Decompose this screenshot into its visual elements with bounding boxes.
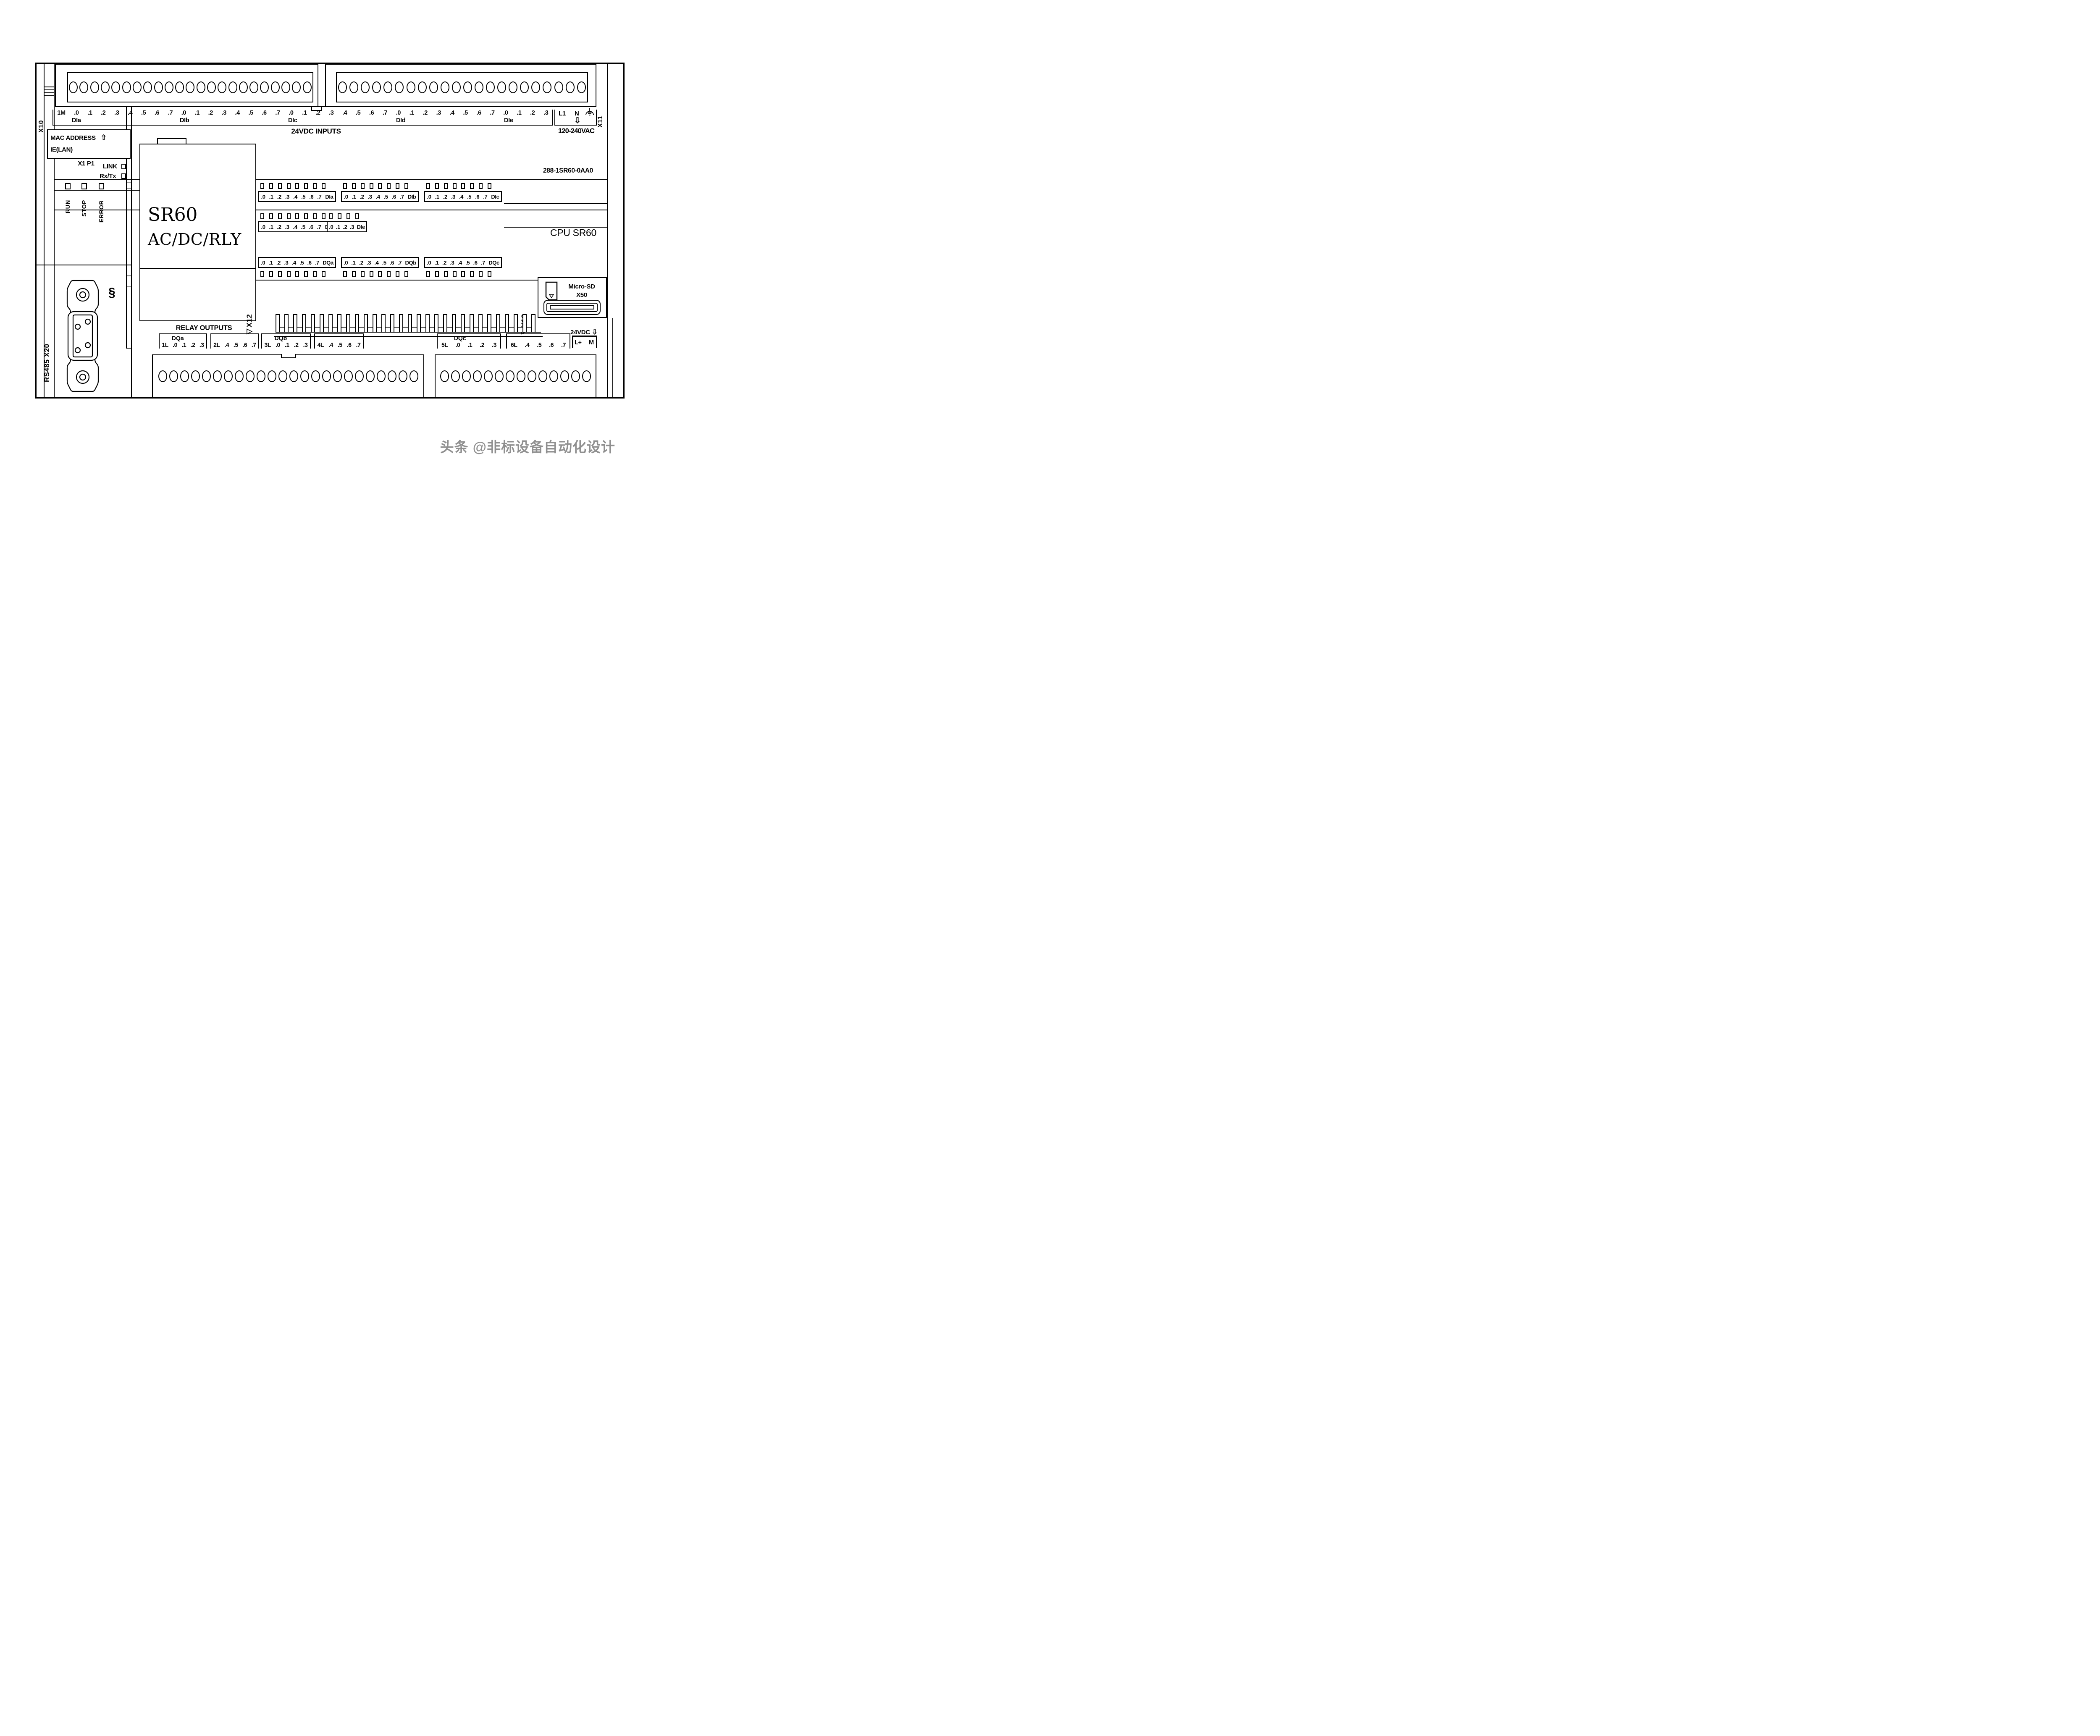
comb-tooth <box>443 314 447 332</box>
terminal-row <box>337 73 587 102</box>
screw-terminal <box>239 81 248 93</box>
led-label: .4 <box>293 224 297 230</box>
screw-terminal <box>186 81 194 93</box>
screw-terminal <box>69 81 78 93</box>
DIb-led-.2 <box>361 183 365 189</box>
screw-terminal <box>228 81 237 93</box>
din-clip-hatch <box>45 95 54 96</box>
plc-faceplate-diagram: X10 X11 1M.0.1.2.3.4.5.6.7.0.1.2.3.4.5.6… <box>0 0 659 465</box>
led-label: DIb <box>408 194 416 200</box>
led-label: DQa <box>323 260 333 266</box>
terminal-label: .6 <box>262 110 266 116</box>
DQa-led-.1 <box>269 271 273 277</box>
comb-tooth <box>355 314 359 332</box>
DIc-led-.2 <box>444 183 448 189</box>
DId-led-.4 <box>295 213 299 219</box>
screw-terminal <box>349 81 358 93</box>
relay-group-4L: 4L.4.5.6.7 <box>314 333 364 349</box>
screw-terminal <box>571 370 580 382</box>
terminal-label: .2 <box>208 110 213 116</box>
DId-led-.2 <box>278 213 282 219</box>
screw-terminal <box>560 370 569 382</box>
outputs-caption: RELAY OUTPUTS <box>163 324 245 332</box>
DIb-led-.7 <box>404 183 408 189</box>
comb-gap <box>315 327 320 332</box>
relay-terminal-label: .1 <box>181 341 186 348</box>
DIc-led-.6 <box>479 183 483 189</box>
terminal-label: .4 <box>235 110 240 116</box>
relay-group-labels: 3L.0.1.2.3 <box>262 341 310 348</box>
screw-terminal <box>246 370 255 382</box>
terminal-label: .6 <box>476 110 481 116</box>
comb-gap <box>465 327 470 332</box>
screw-terminal <box>218 81 226 93</box>
din-clip-hatch <box>45 87 54 87</box>
DIa-led-.7 <box>322 183 325 189</box>
relay-terminal-label: .7 <box>561 341 566 348</box>
input-group-DIa: DIa <box>72 117 81 124</box>
screw-terminal <box>517 370 525 382</box>
watermark: 头条 @非标设备自动化设计 <box>428 436 615 456</box>
sensor-lplus-label: L+ <box>575 339 582 346</box>
mac-address-text: MAC ADDRESS <box>50 134 96 142</box>
comb-tooth <box>425 314 430 332</box>
relay-terminal-label: 2L <box>213 341 220 348</box>
DIb-led-.4 <box>378 183 382 189</box>
relay-terminal-label: .5 <box>234 341 238 348</box>
screw-terminal <box>528 370 536 382</box>
comb-tooth <box>328 314 333 332</box>
comb-gap <box>518 327 522 332</box>
comb-tooth <box>408 314 412 332</box>
screw-terminal <box>303 81 312 93</box>
DIa-led-.1 <box>269 183 273 189</box>
DQb-label-box: .0.1.2.3.4.5.6.7DQb <box>341 257 419 268</box>
input-terminal-labels: 1M.0.1.2.3.4.5.6.7.0.1.2.3.4.5.6.7.0.1.2… <box>53 109 553 117</box>
screw-terminal <box>213 370 222 382</box>
screw-terminal <box>90 81 99 93</box>
power-down-arrow: ⇩ <box>574 116 581 126</box>
left-cap-line <box>55 190 139 191</box>
screw-terminal <box>441 81 449 93</box>
screw-terminal <box>429 81 438 93</box>
rxtx-led-label: Rx/Tx <box>100 173 116 180</box>
led-label: .1 <box>269 224 273 230</box>
screw-terminal <box>538 370 547 382</box>
comb-tooth <box>496 314 500 332</box>
led-label: .7 <box>481 260 485 266</box>
terminal-label: .3 <box>114 110 119 116</box>
screw-terminal <box>122 81 131 93</box>
screw-terminal <box>377 370 386 382</box>
terminal-row <box>68 73 312 102</box>
DIc-led-.5 <box>470 183 474 189</box>
screw-terminal <box>440 370 449 382</box>
sensor-bracket-top <box>572 336 597 337</box>
led-label: DQc <box>488 260 499 266</box>
DQa-led-.3 <box>287 271 291 277</box>
comb-tooth <box>514 314 518 332</box>
led-label: .5 <box>382 260 386 266</box>
comb-tooth <box>417 314 421 332</box>
screw-terminal <box>322 370 331 382</box>
DQc-led-.3 <box>453 271 457 277</box>
screw-terminal <box>180 370 189 382</box>
DId-led-row <box>260 213 325 219</box>
led-label: .0 <box>344 194 348 200</box>
led-label: .2 <box>276 260 281 266</box>
terminal-label: .2 <box>101 110 105 116</box>
sd-label-line2: X50 <box>559 291 605 299</box>
screw-terminal <box>388 370 396 382</box>
led-label: .3 <box>285 194 289 200</box>
comb-tooth <box>505 314 509 332</box>
DIb-led-.1 <box>352 183 356 189</box>
led-label: .5 <box>299 260 304 266</box>
screw-terminal <box>577 81 586 93</box>
DIe-label-box: .0.1.2.3DIe <box>327 221 367 232</box>
error-led <box>99 183 104 189</box>
terminal-label: .6 <box>155 110 159 116</box>
cpu-block-inner-line <box>140 268 255 269</box>
relay-terminal-label: .6 <box>549 341 554 348</box>
DQc-led-.6 <box>479 271 483 277</box>
DQc-led-.1 <box>435 271 439 277</box>
led-label: .2 <box>442 260 446 266</box>
screw-terminal <box>207 81 216 93</box>
terminal-label: .3 <box>222 110 226 116</box>
comb-tooth <box>522 314 527 332</box>
comb-gap <box>289 327 293 332</box>
DQb-led-.6 <box>396 271 399 277</box>
screw-terminal <box>418 81 427 93</box>
comb-tooth <box>399 314 403 332</box>
screw-terminal <box>260 81 269 93</box>
comb-gap <box>474 327 478 332</box>
screw-terminal <box>554 81 563 93</box>
strip-tick <box>127 275 131 276</box>
screw-terminal <box>111 81 120 93</box>
down-arrow-icon: ⇩ <box>592 328 598 336</box>
DQc-led-.2 <box>444 271 448 277</box>
terminal-label: .5 <box>248 110 253 116</box>
relay-terminal-label: .2 <box>294 341 299 348</box>
terminal-label: .2 <box>315 110 320 116</box>
relay-terminal-label: .4 <box>328 341 333 348</box>
screw-terminal <box>158 370 167 382</box>
screw-terminal <box>452 81 461 93</box>
up-arrow-icon: ⇧ <box>101 134 107 142</box>
led-label: .2 <box>343 224 347 230</box>
DQb-led-.7 <box>404 271 408 277</box>
comb-tooth <box>320 314 324 332</box>
screw-terminal <box>495 370 504 382</box>
led-label: .1 <box>269 194 273 200</box>
terminal-label: .1 <box>409 110 414 116</box>
screw-terminal <box>407 81 415 93</box>
comb-gap <box>333 327 337 332</box>
DId-led-.5 <box>304 213 308 219</box>
terminal-label: .7 <box>168 110 173 116</box>
comb-tooth <box>390 314 394 332</box>
led-label: .7 <box>400 194 404 200</box>
DIa-led-.4 <box>295 183 299 189</box>
led-label: .1 <box>336 224 340 230</box>
DIc-led-.0 <box>426 183 430 189</box>
port-x10-label: X10 <box>38 111 47 133</box>
screw-terminal <box>338 81 347 93</box>
screw-terminal <box>463 81 472 93</box>
led-label: .4 <box>459 194 463 200</box>
DQb-led-row <box>343 271 408 277</box>
sensor-supply-caption: 24VDC ⇩ <box>570 328 598 336</box>
relay-terminal-label: .3 <box>199 341 204 348</box>
relay-terminal-label: .5 <box>338 341 342 348</box>
terminal-label: 1M <box>57 110 65 116</box>
DQa-led-.5 <box>304 271 308 277</box>
led-label: .5 <box>384 194 388 200</box>
screw-terminal <box>101 81 110 93</box>
DQc-led-.5 <box>470 271 474 277</box>
relay-terminal-label: .1 <box>285 341 289 348</box>
DIb-led-.3 <box>370 183 373 189</box>
comb-gap <box>509 327 514 332</box>
terminal-label: .0 <box>503 110 508 116</box>
DQa-led-.4 <box>295 271 299 277</box>
DId-led-.7 <box>322 213 325 219</box>
relay-group-name-DQb: DQb <box>275 335 287 341</box>
DQb-led-.2 <box>361 271 365 277</box>
terminal-label: .0 <box>289 110 293 116</box>
bottom-cover-notch <box>281 354 296 358</box>
top-band-bottom-line <box>55 106 596 107</box>
led-label: .1 <box>352 194 356 200</box>
relay-terminal-label: .3 <box>303 341 308 348</box>
relay-terminal-label: .6 <box>347 341 352 348</box>
comb-gap <box>447 327 452 332</box>
rxtx-led <box>121 173 126 179</box>
comb-gap <box>280 327 284 332</box>
cpu-caption: CPU SR60 <box>483 227 596 239</box>
led-label: .2 <box>277 194 281 200</box>
comb-tooth <box>434 314 438 332</box>
comb-gap <box>368 327 373 332</box>
DIa-led-.2 <box>278 183 282 189</box>
led-label: .1 <box>351 260 355 266</box>
DIc-led-.4 <box>461 183 465 189</box>
power-bracket-right-tick <box>596 110 597 126</box>
led-label: .6 <box>390 260 394 266</box>
screw-terminal <box>292 81 301 93</box>
relay-terminal-label: 6L <box>511 341 517 348</box>
screw-terminal <box>549 370 558 382</box>
screw-terminal <box>361 81 370 93</box>
input-group-DIc: DIc <box>288 117 297 124</box>
run-led <box>65 183 71 189</box>
DIc-led-row <box>426 183 491 189</box>
comb-gap <box>412 327 417 332</box>
led-label: .0 <box>261 224 265 230</box>
mid-strip-jog <box>126 348 132 349</box>
led-label: .1 <box>435 194 439 200</box>
DId-led-.0 <box>260 213 264 219</box>
screw-terminal <box>133 81 142 93</box>
relay-group-2L: 2L.4.5.6.7 <box>210 333 259 349</box>
strip-tick <box>127 188 131 189</box>
stop-led-label: STOP <box>81 191 88 217</box>
DIa-led-.0 <box>260 183 264 189</box>
screw-terminal <box>582 370 591 382</box>
din-clip-hatch <box>45 89 54 90</box>
input-group-DId: DId <box>396 117 405 124</box>
order-number: 288-1SR60-0AA0 <box>483 167 593 175</box>
led-label: .7 <box>483 194 487 200</box>
screw-terminal <box>475 81 483 93</box>
comb-gap <box>527 327 531 332</box>
left-panel-top-line <box>36 265 131 265</box>
led-label: .2 <box>277 224 281 230</box>
screw-terminal <box>224 370 233 382</box>
di-bracket-bottom <box>52 125 553 126</box>
led-label: .3 <box>367 260 371 266</box>
comb-gap <box>403 327 408 332</box>
comb-gap <box>350 327 355 332</box>
led-label: DIc <box>491 194 499 200</box>
led-label: .3 <box>284 260 288 266</box>
input-group-DIb: DIb <box>180 117 189 124</box>
body-line <box>256 210 607 210</box>
relay-group-labels: 1L.0.1.2.3 <box>160 341 206 348</box>
led-label: .2 <box>443 194 447 200</box>
case-inner-right-line-2 <box>612 318 613 397</box>
screw-terminal <box>79 81 88 93</box>
case-right-edge <box>623 63 625 399</box>
DIa-led-.5 <box>304 183 308 189</box>
led-label: .0 <box>344 260 348 266</box>
screw-terminal <box>281 81 290 93</box>
screw-terminal <box>268 370 276 382</box>
power-caption: 120-240VAC <box>553 127 600 135</box>
terminal-label: .0 <box>74 110 79 116</box>
screw-terminal <box>165 81 173 93</box>
DIe-led-.0 <box>329 213 333 219</box>
terminal-label: .1 <box>302 110 307 116</box>
screw-terminal <box>202 370 211 382</box>
relay-group-labels: 5L.0.1.2.3 <box>438 341 500 348</box>
DId-label-box: .0.1.2.3.4.5.6.7DId <box>258 221 336 232</box>
relay-terminal-label: .7 <box>356 341 361 348</box>
comb-tooth <box>373 314 377 332</box>
led-label: .1 <box>269 260 273 266</box>
relay-terminal-label: .6 <box>242 341 247 348</box>
comb-gap <box>491 327 496 332</box>
relay-terminal-label: .0 <box>173 341 177 348</box>
screw-terminal <box>497 81 506 93</box>
relay-group-name-DQa: DQa <box>172 335 184 341</box>
comb-tooth <box>364 314 368 332</box>
screw-terminal <box>355 370 364 382</box>
screw-terminal <box>249 81 258 93</box>
led-label: .7 <box>397 260 402 266</box>
led-label: .3 <box>451 194 455 200</box>
comb-tooth <box>302 314 306 332</box>
sd-card-icon <box>545 281 558 301</box>
screw-terminal <box>311 370 320 382</box>
case-left-edge <box>35 63 37 399</box>
screw-terminal <box>278 370 287 382</box>
DQa-led-.2 <box>278 271 282 277</box>
led-label: .2 <box>360 194 364 200</box>
sd-slot-inner <box>550 305 594 309</box>
comb-gap <box>394 327 399 332</box>
terminal-label: .0 <box>181 110 186 116</box>
screw-terminal <box>383 81 392 93</box>
screw-terminal <box>271 81 280 93</box>
relay-terminal-label: .3 <box>492 341 496 348</box>
right-step-line <box>504 203 607 204</box>
screw-terminal <box>235 370 244 382</box>
screw-terminal <box>395 81 404 93</box>
screw-terminal <box>399 370 407 382</box>
comb-tooth <box>461 314 465 332</box>
comb-gap <box>386 327 390 332</box>
screw-terminal <box>451 370 460 382</box>
DQc-led-.4 <box>461 271 465 277</box>
led-label: .7 <box>317 224 321 230</box>
led-label: .5 <box>467 194 471 200</box>
comb-tooth <box>531 314 535 332</box>
DQa-label-box: .0.1.2.3.4.5.6.7DQa <box>258 257 336 268</box>
DQc-led-.7 <box>488 271 491 277</box>
sensor-m-label: M <box>589 339 594 346</box>
DIb-led-.0 <box>343 183 347 189</box>
DQa-led-.6 <box>313 271 317 277</box>
terminal-label: .5 <box>463 110 467 116</box>
strip-tick <box>127 182 131 183</box>
ie-lan-label: IE(LAN) <box>50 146 73 153</box>
led-label: .3 <box>350 224 354 230</box>
DQb-led-.3 <box>370 271 373 277</box>
screw-terminal <box>531 81 540 93</box>
DIb-led-.6 <box>396 183 399 189</box>
comb-tooth <box>284 314 289 332</box>
comb-gap <box>456 327 461 332</box>
led-label: .6 <box>309 224 313 230</box>
expansion-connector-comb <box>276 314 541 333</box>
body-line <box>55 179 607 180</box>
led-label: .0 <box>261 260 265 266</box>
comb-tooth <box>346 314 350 332</box>
screw-terminal <box>191 370 200 382</box>
screw-terminal <box>175 81 184 93</box>
DIb-led-.5 <box>387 183 391 189</box>
terminal-label: .3 <box>543 110 548 116</box>
relay-group-3L: DQb3L.0.1.2.3 <box>261 333 311 349</box>
relay-terminal-label: 5L <box>441 341 448 348</box>
comb-gap <box>430 327 434 332</box>
din-clip-icon: § <box>108 286 115 300</box>
DId-led-.3 <box>287 213 291 219</box>
led-label: .7 <box>315 260 319 266</box>
led-label: .6 <box>392 194 396 200</box>
screw-terminal <box>372 81 381 93</box>
screw-terminal <box>462 370 471 382</box>
led-label: .6 <box>309 194 313 200</box>
DQb-led-.4 <box>378 271 382 277</box>
relay-terminal-label: .0 <box>456 341 460 348</box>
DIb-label-box: .0.1.2.3.4.5.6.7DIb <box>341 191 419 202</box>
comb-tooth <box>381 314 386 332</box>
